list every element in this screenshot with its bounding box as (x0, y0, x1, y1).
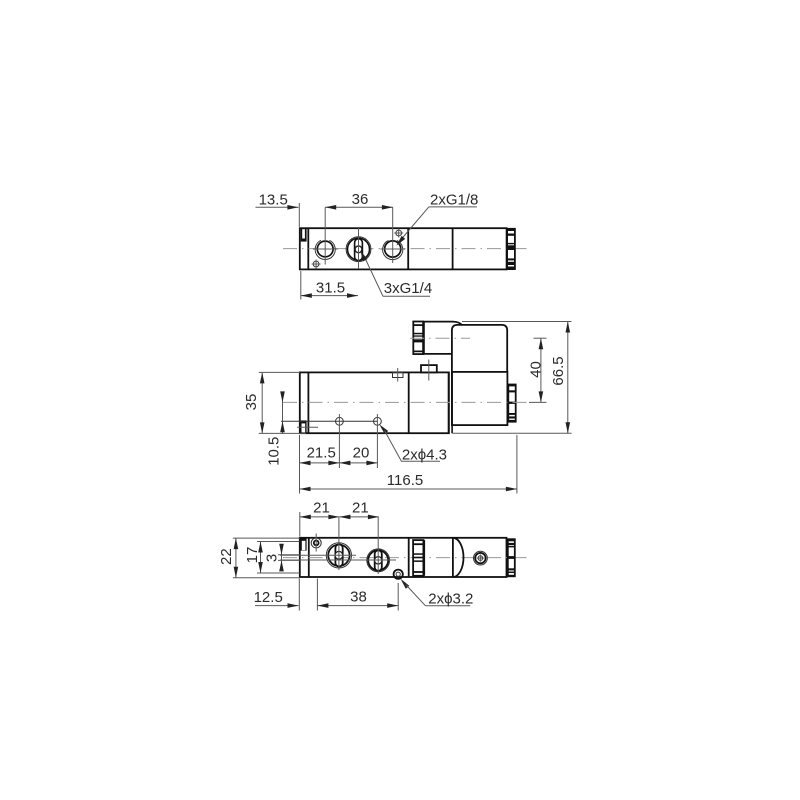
svg-text:17: 17 (244, 547, 261, 564)
svg-text:35: 35 (243, 394, 260, 411)
svg-text:116.5: 116.5 (387, 472, 423, 489)
svg-text:20: 20 (353, 445, 370, 462)
svg-text:36: 36 (352, 191, 369, 208)
svg-text:13.5: 13.5 (259, 192, 288, 209)
svg-text:2xϕ3.2: 2xϕ3.2 (428, 590, 473, 607)
svg-text:38: 38 (350, 589, 367, 606)
svg-text:2xϕ4.3: 2xϕ4.3 (402, 446, 447, 463)
svg-text:12.5: 12.5 (254, 589, 283, 606)
svg-text:40: 40 (527, 361, 544, 378)
svg-text:66.5: 66.5 (550, 356, 567, 385)
svg-text:2xG1/8: 2xG1/8 (430, 192, 478, 209)
svg-text:3xG1/4: 3xG1/4 (384, 280, 432, 297)
svg-text:21: 21 (352, 500, 369, 517)
svg-text:10.5: 10.5 (265, 437, 282, 466)
svg-text:22: 22 (218, 548, 235, 565)
svg-text:3: 3 (264, 554, 281, 562)
svg-text:21.5: 21.5 (307, 445, 336, 462)
svg-text:31.5: 31.5 (316, 280, 345, 297)
svg-text:21: 21 (313, 500, 330, 517)
